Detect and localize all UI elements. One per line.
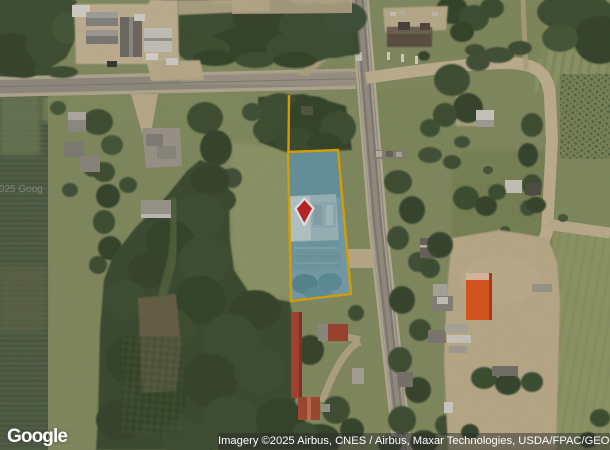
svg-text:©2025 Goog: ©2025 Goog	[0, 184, 43, 195]
